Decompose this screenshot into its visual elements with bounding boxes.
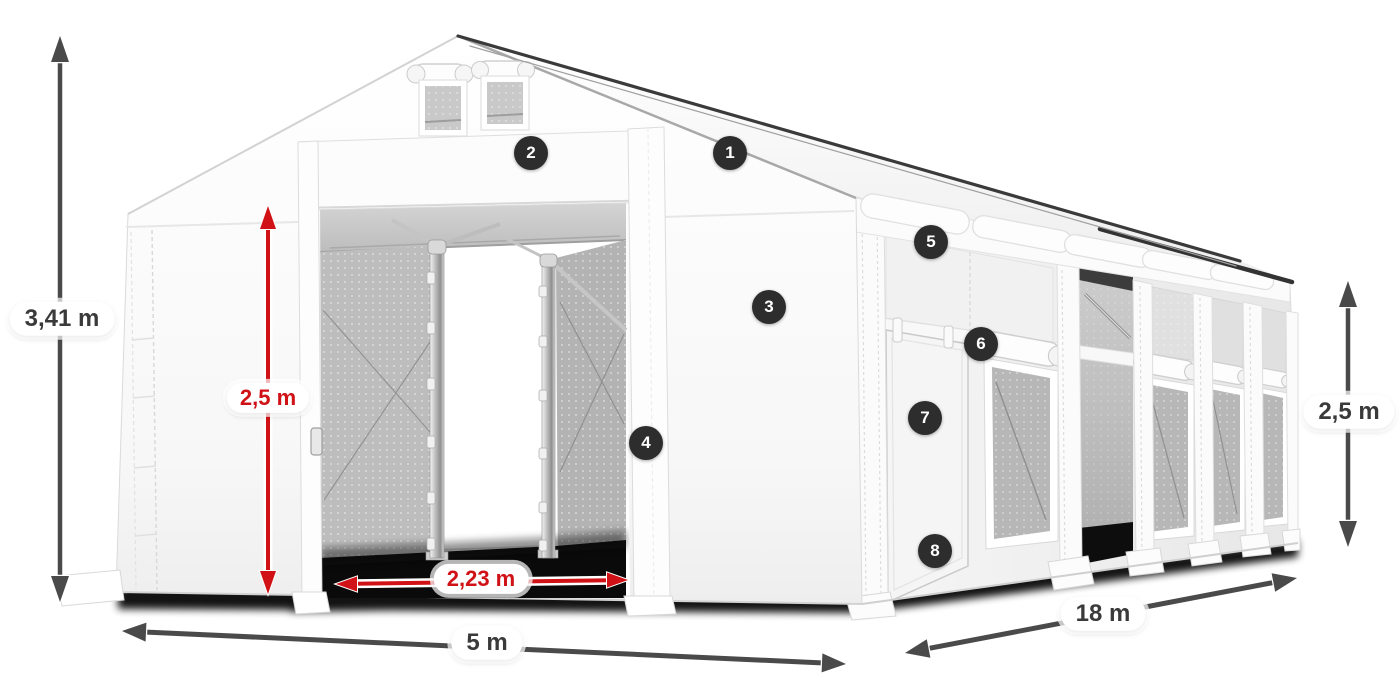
tent-illustration bbox=[0, 0, 1400, 700]
callout-badge-3[interactable]: 3 bbox=[752, 290, 786, 324]
dimension-label-side-wall-height: 2,5 m bbox=[1303, 395, 1394, 429]
gable-vent bbox=[472, 61, 535, 130]
callout-badge-7[interactable]: 7 bbox=[908, 401, 942, 435]
dimension-label-front-width: 5 m bbox=[451, 626, 522, 660]
dimension-label-entrance-height: 2,5 m bbox=[227, 383, 309, 413]
callout-badge-4[interactable]: 4 bbox=[629, 426, 663, 460]
callout-badge-8[interactable]: 8 bbox=[918, 534, 952, 568]
callout-badge-1[interactable]: 1 bbox=[713, 136, 747, 170]
callout-badge-5[interactable]: 5 bbox=[914, 225, 948, 259]
front-door-opening bbox=[318, 192, 632, 600]
tent-dimension-diagram: 3,41 m 2,5 m 2,23 m 5 m 18 m 2,5 m 1 2 3… bbox=[0, 0, 1400, 700]
callout-badge-6[interactable]: 6 bbox=[964, 327, 998, 361]
side-door-opening bbox=[1079, 266, 1133, 564]
callout-badge-2[interactable]: 2 bbox=[514, 136, 548, 170]
door-handle bbox=[311, 428, 322, 455]
dimension-label-side-length: 18 m bbox=[1061, 597, 1146, 631]
dimension-label-entrance-width: 2,23 m bbox=[434, 564, 529, 594]
side-window bbox=[972, 328, 1071, 549]
dimension-label-total-height: 3,41 m bbox=[10, 302, 115, 336]
